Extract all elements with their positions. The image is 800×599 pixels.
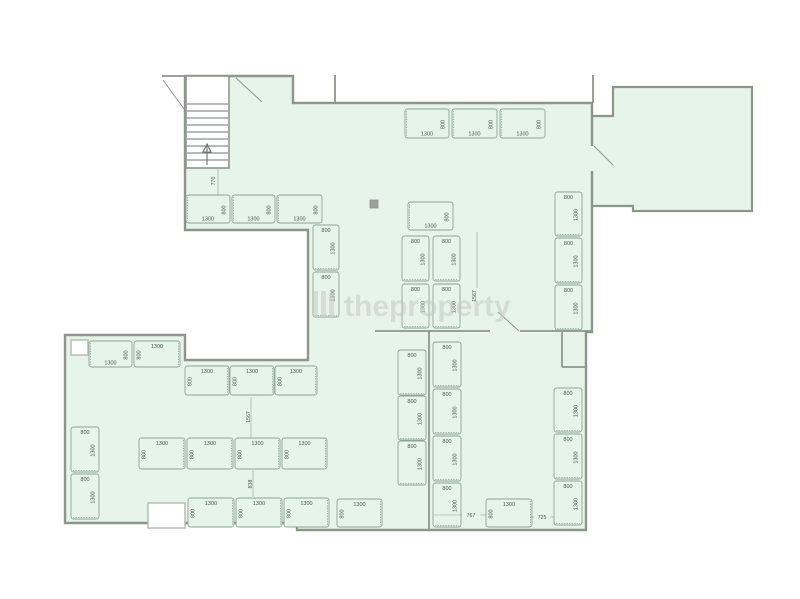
- dimension-annotation: 770: [211, 177, 217, 186]
- desk-dimension-label: 800: [188, 377, 194, 386]
- desk-dimension-label: 1300: [293, 217, 305, 223]
- desk: 1300800: [235, 438, 280, 469]
- desk-dimension-label: 1300: [151, 344, 163, 350]
- desk-dimension-label: 1300: [424, 224, 436, 230]
- desk-dimension-label: 1300: [298, 441, 310, 447]
- structural-column: [370, 200, 378, 208]
- desk-dimension-label: 800: [407, 353, 416, 359]
- desk-dimension-label: 800: [267, 205, 273, 214]
- desk-dimension-label: 1300: [574, 498, 580, 510]
- desk: 1300800: [405, 109, 449, 138]
- desk: 1300800: [282, 438, 327, 469]
- desk-dimension-label: 800: [191, 509, 197, 518]
- desk-dimension-label: 1300: [453, 453, 459, 465]
- desk-dimension-label: 1300: [156, 441, 168, 447]
- desk-dimension-label: 1300: [201, 369, 213, 375]
- desk: 1300800: [236, 498, 282, 527]
- desk-dimension-label: 1300: [91, 491, 97, 503]
- desk: 8001300: [71, 474, 99, 519]
- desk-dimension-label: 1300: [452, 253, 458, 265]
- desk: 8001300: [554, 388, 582, 432]
- desk: 8001300: [555, 192, 582, 236]
- desk: 8001300: [71, 427, 99, 472]
- desk: 1300800: [188, 498, 234, 527]
- desk: 1300800: [486, 499, 532, 527]
- desk-dimension-label: 1300: [202, 217, 214, 223]
- dimension-annotation: 767: [467, 513, 476, 519]
- desk-dimension-label: 1300: [253, 501, 265, 507]
- desk-dimension-label: 1300: [247, 217, 259, 223]
- staircase: [186, 76, 229, 168]
- desk-dimension-label: 1300: [331, 242, 337, 254]
- desk-dimension-label: 800: [537, 120, 543, 129]
- desk-dimension-label: 1300: [453, 406, 459, 418]
- desk: 1300800: [275, 366, 317, 395]
- desk: 8001300: [398, 350, 426, 395]
- desk: 1300800: [186, 195, 230, 223]
- desk: 1300800: [185, 366, 229, 395]
- desk: 1300800: [500, 109, 545, 138]
- desk-dimension-label: 800: [222, 205, 228, 214]
- floorplan-svg: 1300800130080013008001300800130080013008…: [0, 0, 800, 599]
- desk-dimension-label: 1300: [418, 458, 424, 470]
- desk-dimension-label: 1300: [290, 369, 302, 375]
- desk-dimension-label: 800: [563, 391, 572, 397]
- desk-dimension-label: 800: [489, 120, 495, 129]
- desk-dimension-label: 1300: [574, 302, 580, 314]
- desk-dimension-label: 800: [564, 241, 573, 247]
- desk: 1300800: [408, 202, 453, 230]
- desk: 8001300: [433, 342, 461, 387]
- desk-dimension-label: 1300: [468, 132, 480, 138]
- wall-opening-box: [148, 503, 185, 528]
- desk-dimension-label: 800: [287, 509, 293, 518]
- desk-dimension-label: 800: [137, 350, 143, 359]
- dimension-annotation: 725: [538, 515, 547, 521]
- desk-dimension-label: 1300: [516, 132, 528, 138]
- desk: 1300800: [230, 366, 274, 395]
- desk: 8001300: [555, 285, 582, 330]
- desk-dimension-label: 800: [80, 430, 89, 436]
- desk: 1300800: [134, 341, 180, 367]
- desk-dimension-label: 1300: [574, 255, 580, 267]
- desk-dimension-label: 1300: [453, 359, 459, 371]
- desk: 8001300: [398, 441, 426, 485]
- desk-dimension-label: 800: [238, 450, 244, 459]
- desk-dimension-label: 800: [407, 444, 416, 450]
- wall-opening-box: [71, 340, 88, 355]
- desk-dimension-label: 800: [411, 239, 420, 245]
- desk-dimension-label: 1300: [421, 253, 427, 265]
- desk-dimension-label: 1300: [421, 132, 433, 138]
- desk-dimension-label: 800: [233, 377, 239, 386]
- desk-dimension-label: 1300: [574, 451, 580, 463]
- watermark-text: theproperty: [344, 290, 511, 323]
- desk: 1300800: [277, 195, 322, 223]
- desk: 1300800: [139, 438, 185, 469]
- desk-dimension-label: 800: [441, 120, 447, 129]
- desk-dimension-label: 800: [442, 486, 451, 492]
- desk: 1300800: [452, 109, 497, 138]
- desk-dimension-label: 800: [285, 450, 291, 459]
- desk-dimension-label: 800: [142, 450, 148, 459]
- desk-dimension-label: 800: [239, 509, 245, 518]
- desk: 8001300: [402, 236, 429, 281]
- desk-dimension-label: 800: [442, 239, 451, 245]
- door-opening: [587, 146, 595, 171]
- desk-dimension-label: 800: [442, 392, 451, 398]
- desk-dimension-label: 1300: [503, 502, 515, 508]
- desk-dimension-label: 800: [564, 195, 573, 201]
- desk-dimension-label: 1300: [204, 441, 216, 447]
- desk-dimension-label: 1300: [205, 501, 217, 507]
- desk-dimension-label: 1300: [91, 444, 97, 456]
- desk: 1300800: [284, 498, 329, 527]
- desk: 8001300: [433, 436, 461, 481]
- desk-dimension-label: 800: [442, 439, 451, 445]
- desk: 1300800: [337, 499, 382, 527]
- desk-dimension-label: 800: [442, 345, 451, 351]
- desk: 8001300: [433, 389, 461, 434]
- desk-dimension-label: 800: [563, 484, 572, 490]
- desk-dimension-label: 1300: [453, 500, 459, 512]
- desk-dimension-label: 800: [80, 477, 89, 483]
- desk-dimension-label: 800: [321, 275, 330, 281]
- desk: 8001300: [313, 225, 339, 270]
- desk: 8001300: [555, 238, 582, 283]
- watermark-logo-bar: [321, 291, 326, 317]
- annex-room-area: [590, 87, 752, 211]
- dimension-annotation: 1567: [246, 411, 252, 423]
- desk: 1300800: [232, 195, 275, 223]
- desk: 8001300: [433, 236, 460, 281]
- dimension-annotation: 838: [248, 480, 254, 489]
- desk-dimension-label: 800: [563, 437, 572, 443]
- watermark-logo-bar: [329, 293, 334, 317]
- desk-dimension-label: 1300: [418, 413, 424, 425]
- floorplan-image: 1300800130080013008001300800130080013008…: [0, 0, 800, 599]
- desk-dimension-label: 1300: [251, 441, 263, 447]
- desk-dimension-label: 800: [321, 228, 330, 234]
- desk-dimension-label: 800: [340, 509, 346, 518]
- desk-dimension-label: 800: [278, 377, 284, 386]
- desk-dimension-label: 1300: [300, 501, 312, 507]
- desk-dimension-label: 1300: [574, 405, 580, 417]
- desk-dimension-label: 800: [445, 212, 451, 221]
- desk-dimension-label: 1300: [104, 361, 116, 367]
- desk-dimension-label: 800: [124, 350, 130, 359]
- desk-dimension-label: 1300: [246, 369, 258, 375]
- desk-dimension-label: 800: [407, 399, 416, 405]
- desk-dimension-label: 800: [314, 205, 320, 214]
- desk: 8001300: [554, 434, 582, 479]
- desk-dimension-label: 800: [489, 509, 495, 518]
- desk-dimension-label: 1300: [353, 502, 365, 508]
- desk: 8001300: [433, 483, 461, 527]
- desk-dimension-label: 800: [564, 288, 573, 294]
- desk-dimension-label: 800: [190, 450, 196, 459]
- desk: 8001300: [398, 396, 426, 440]
- desk-dimension-label: 1300: [418, 367, 424, 379]
- desk: 1300800: [89, 341, 132, 367]
- desk-dimension-label: 1300: [574, 209, 580, 221]
- desk: 8001300: [554, 481, 582, 525]
- desk: 1300800: [187, 438, 233, 469]
- watermark-logo-bar: [313, 291, 318, 317]
